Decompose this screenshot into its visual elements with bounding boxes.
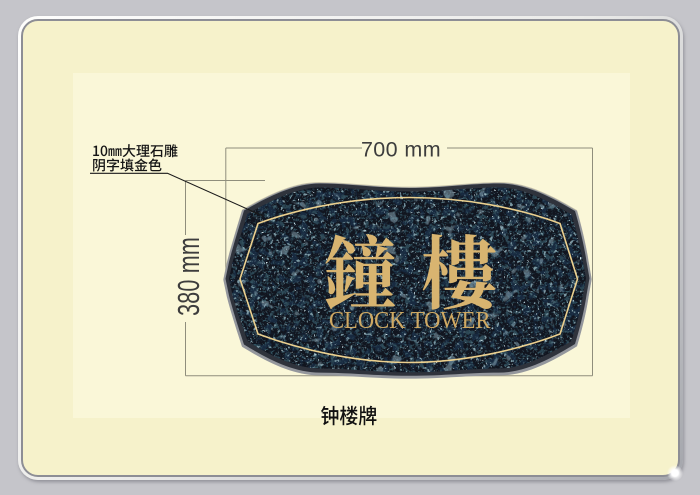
svg-text:700 mm: 700 mm [361, 138, 441, 162]
svg-text:380 mm: 380 mm [171, 237, 206, 316]
svg-text:CLOCK TOWER: CLOCK TOWER [329, 307, 491, 334]
